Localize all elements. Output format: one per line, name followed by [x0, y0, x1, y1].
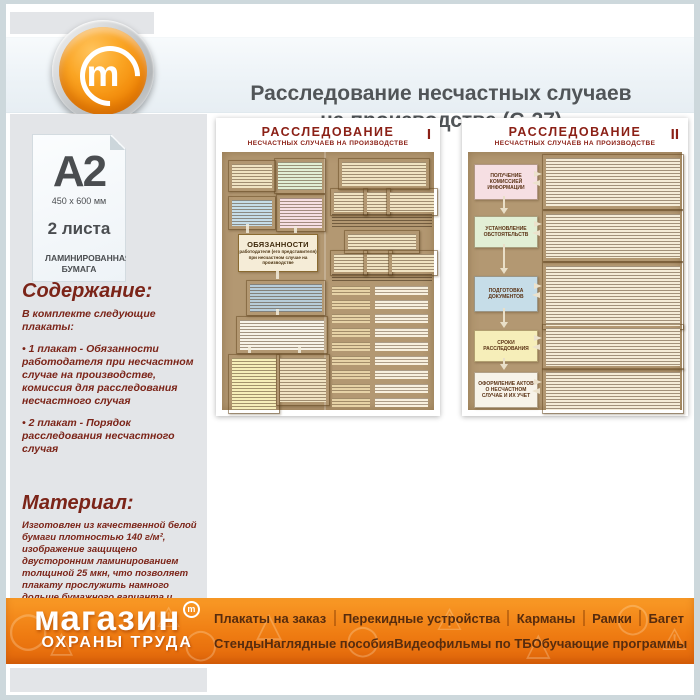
double-arrow-icon	[532, 335, 542, 350]
contents-section: Содержание: В комплекте следующие плакат…	[22, 280, 197, 465]
contents-item: • 2 плакат - Порядок расследования несча…	[22, 417, 197, 456]
footer-menu-row-1: Плакаты на заказ Перекидные устройства К…	[214, 610, 684, 626]
store-logo[interactable]: m	[52, 20, 154, 122]
connector-line	[276, 271, 279, 279]
text-panel	[542, 262, 684, 330]
footer-logo-line2: ОХРАНЫ ТРУДА	[34, 634, 200, 652]
poster2-flowchart: ПОЛУЧЕНИЕ КОМИССИЕЙ ИНФОРМАЦИИ УСТАНОВЛЕ…	[468, 152, 682, 410]
contents-item: • 1 плакат - Обязанности работодателя пр…	[22, 343, 197, 408]
menu-item-stands[interactable]: Стенды	[214, 636, 264, 651]
sidebar: A2 450 x 600 мм 2 листа ЛАМИНИРОВАННАЯ Б…	[10, 114, 207, 598]
menu-item-pockets[interactable]: Карманы	[517, 611, 576, 626]
contents-heading: Содержание:	[22, 280, 197, 303]
paper-fold-icon	[110, 135, 125, 150]
duties-heading: ОБЯЗАННОСТИ	[239, 240, 317, 249]
poster2-header: РАССЛЕДОВАНИЕ НЕСЧАСТНЫХ СЛУЧАЕВ НА ПРОИ…	[462, 118, 688, 147]
table-row	[330, 382, 430, 395]
down-arrow-icon	[500, 196, 508, 214]
table-row	[330, 340, 430, 353]
menu-item-visual-aids[interactable]: Наглядные пособия	[264, 636, 394, 651]
flow-box	[274, 158, 326, 194]
duties-line: при несчастном случае на производстве	[239, 255, 317, 266]
menu-item-frames[interactable]: Рамки	[592, 611, 632, 626]
flow-box	[276, 194, 326, 232]
footer-logo-text: магазин	[34, 599, 180, 638]
format-size: A2	[33, 150, 125, 194]
flow-text	[330, 272, 434, 284]
table-row	[330, 326, 430, 339]
footer-logo[interactable]: магазинm ОХРАНЫ ТРУДА	[34, 601, 200, 652]
double-arrow-icon	[532, 221, 542, 236]
poster1-numeral: I	[427, 126, 431, 143]
footer-menus: Плакаты на заказ Перекидные устройства К…	[214, 601, 684, 661]
down-arrow-icon	[500, 358, 508, 370]
footer-bar: ◯ △ ⚠ ◯ △ ◯ ⚠ △ ◯ ⚠ магазинm ОХРАНЫ ТРУД…	[6, 598, 694, 664]
format-dimensions: 450 x 600 мм	[33, 196, 125, 206]
double-arrow-icon	[532, 379, 542, 394]
poster1-flowchart: ОБЯЗАННОСТИ работодателя (его представит…	[222, 152, 434, 410]
step-box: ПОЛУЧЕНИЕ КОМИССИЕЙ ИНФОРМАЦИИ	[474, 164, 538, 200]
duties-box: ОБЯЗАННОСТИ работодателя (его представит…	[238, 234, 318, 272]
paper-format-icon: A2 450 x 600 мм 2 листа ЛАМИНИРОВАННАЯ Б…	[32, 134, 126, 282]
poster2-subtitle: НЕСЧАСТНЫХ СЛУЧАЕВ НА ПРОИЗВОДСТВЕ	[462, 140, 688, 147]
text-panel	[542, 154, 684, 210]
page-title-line1: Расследование несчастных случаев	[196, 80, 686, 107]
step-box: ПОДГОТОВКА ДОКУМЕНТОВ	[474, 276, 538, 312]
poster1-subtitle: НЕСЧАСТНЫХ СЛУЧАЕВ НА ПРОИЗВОДСТВЕ	[216, 140, 440, 147]
footer-menu-row-2: Стенды Наглядные пособия Видеофильмы по …	[214, 636, 684, 652]
logo-orange-ball-icon: m	[59, 27, 147, 115]
menu-item-baguette[interactable]: Багет	[649, 611, 684, 626]
text-panel	[542, 210, 684, 262]
poster1-title: РАССЛЕДОВАНИЕ	[216, 125, 440, 139]
menu-item-safety-videos[interactable]: Видеофильмы по ТБ	[394, 636, 531, 651]
flow-box	[228, 160, 276, 192]
menu-separator	[639, 610, 641, 626]
down-arrow-icon	[500, 244, 508, 274]
footer-logo-line1: магазинm	[34, 601, 200, 637]
flow-box	[228, 196, 276, 230]
double-arrow-icon	[532, 171, 542, 186]
menu-separator	[334, 610, 336, 626]
table-row	[330, 312, 430, 325]
format-sheets: 2 листа	[33, 219, 125, 239]
bottom-gray-strip	[10, 668, 207, 692]
logo-m-icon: m	[59, 55, 147, 93]
poster-thumbnail-1[interactable]: РАССЛЕДОВАНИЕ НЕСЧАСТНЫХ СЛУЧАЕВ НА ПРОИ…	[216, 118, 440, 416]
down-arrow-icon	[500, 308, 508, 328]
menu-separator	[507, 610, 509, 626]
page-background: Расследование несчастных случаев на прои…	[6, 4, 694, 695]
flow-text	[330, 212, 434, 230]
poster2-title: РАССЛЕДОВАНИЕ	[462, 125, 688, 139]
connector-line	[276, 309, 279, 315]
trademark-badge-icon: m	[183, 601, 200, 618]
table-row	[330, 298, 430, 311]
poster1-header: РАССЛЕДОВАНИЕ НЕСЧАСТНЫХ СЛУЧАЕВ НА ПРОИ…	[216, 118, 440, 147]
table-row	[330, 396, 430, 409]
poster2-numeral: II	[671, 126, 679, 143]
connector-line	[294, 226, 297, 233]
flow-box	[276, 354, 330, 406]
poster-thumbnail-2[interactable]: РАССЛЕДОВАНИЕ НЕСЧАСТНЫХ СЛУЧАЕВ НА ПРОИ…	[462, 118, 688, 416]
table-row	[330, 284, 430, 297]
menu-item-posters[interactable]: Плакаты на заказ	[214, 611, 326, 626]
material-heading: Материал:	[22, 492, 199, 515]
step-box: ОФОРМЛЕНИЕ АКТОВ О НЕСЧАСТНОМ СЛУЧАЕ И И…	[474, 372, 538, 408]
flow-box	[338, 158, 430, 190]
table-row	[330, 354, 430, 367]
connector-line	[248, 347, 251, 353]
table-row	[330, 368, 430, 381]
menu-item-training-programs[interactable]: Обучающие программы	[532, 636, 688, 651]
flow-box	[246, 280, 326, 316]
menu-separator	[583, 610, 585, 626]
menu-item-flip-devices[interactable]: Перекидные устройства	[343, 611, 500, 626]
screen: Расследование несчастных случаев на прои…	[0, 0, 700, 700]
flow-box	[228, 354, 280, 414]
connector-line	[298, 347, 301, 353]
text-panel	[542, 324, 684, 370]
format-paper-type: ЛАМИНИРОВАННАЯ БУМАГА	[33, 253, 125, 275]
double-arrow-icon	[532, 283, 542, 298]
connector-line	[246, 224, 249, 233]
text-panel	[542, 368, 684, 414]
contents-intro: В комплекте следующие плакаты:	[22, 308, 197, 334]
